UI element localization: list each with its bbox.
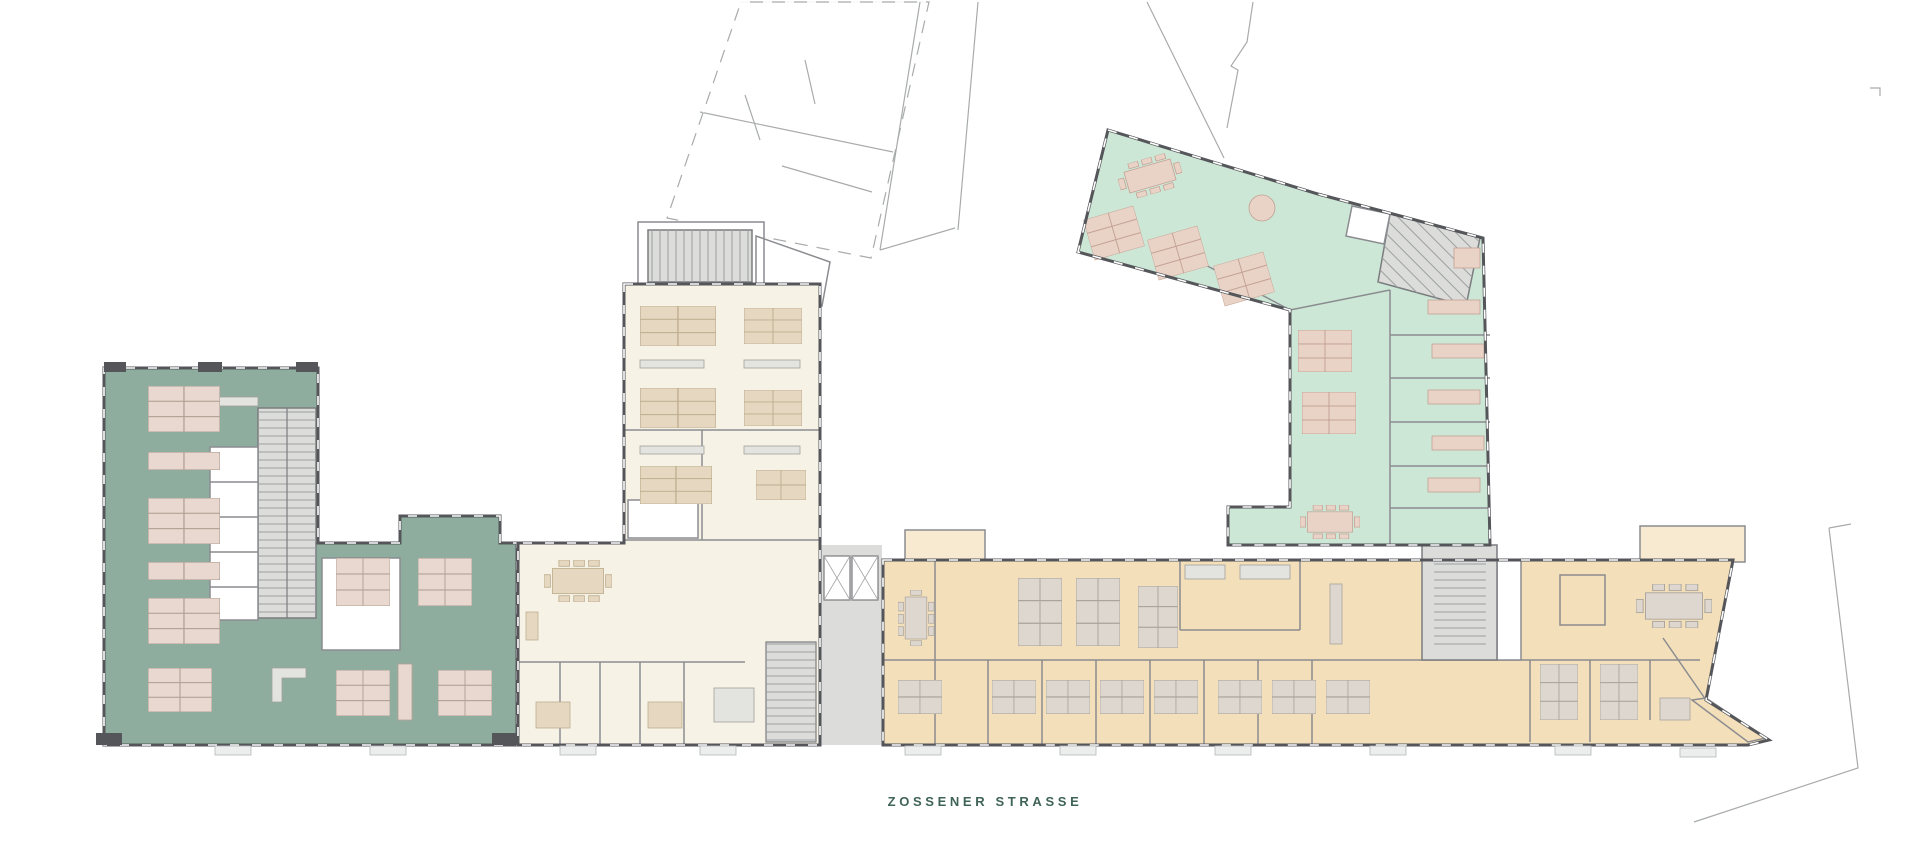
floor-plan-canvas: ZOSSENER STRASSE — [0, 0, 1920, 866]
desk-cluster — [1540, 664, 1578, 720]
lintel — [198, 362, 222, 372]
center-wc-block — [628, 500, 698, 538]
stoop — [1060, 746, 1096, 755]
desk-cluster — [336, 558, 390, 606]
desk-cluster — [992, 680, 1036, 714]
desk-cluster — [640, 388, 716, 428]
building-west-wing — [96, 362, 517, 745]
office-desk — [1454, 248, 1480, 268]
south-bay-east — [1640, 526, 1745, 562]
desk-cluster — [640, 306, 716, 346]
desk-cluster — [744, 308, 802, 344]
desk-bench — [148, 452, 220, 470]
stoop — [370, 746, 406, 755]
desk-cluster — [1018, 578, 1062, 646]
desk-cluster — [640, 466, 712, 504]
desk-cluster — [148, 498, 220, 544]
entrance-stoops — [215, 746, 1716, 757]
stoop — [560, 746, 596, 755]
desk-cluster — [418, 558, 472, 606]
center-stair-south-treads — [766, 642, 816, 742]
desk-cluster — [1302, 392, 1356, 434]
cabinet — [744, 446, 800, 454]
lintel — [492, 733, 517, 745]
building-northeast-wing — [1078, 130, 1490, 545]
office-desk — [1432, 436, 1484, 450]
desk-bench — [148, 562, 220, 580]
south-stair-treads — [1434, 560, 1486, 648]
stoop — [700, 746, 736, 755]
stoop — [905, 746, 941, 755]
lintel — [104, 362, 126, 372]
desk-cluster — [148, 386, 220, 432]
office-desk — [1660, 698, 1690, 720]
side-desk — [526, 612, 538, 640]
building-center-wing — [518, 222, 882, 745]
neighbor-outline-shape — [667, 2, 929, 258]
building-south-block — [883, 526, 1769, 745]
stoop — [1555, 746, 1591, 755]
lintel — [296, 362, 318, 372]
cabinet — [640, 360, 704, 368]
lightwell — [1497, 560, 1521, 660]
desk-cluster — [1046, 680, 1090, 714]
desk-bench — [398, 664, 412, 720]
desk-cluster — [1138, 586, 1178, 648]
desk-cluster — [336, 670, 390, 716]
floor-plan-drawing — [0, 0, 1920, 866]
desk-cluster — [1076, 578, 1120, 646]
desk-cluster — [438, 670, 492, 716]
kitchen-counter — [1185, 565, 1225, 579]
desk-cluster — [1600, 664, 1638, 720]
cabinet — [744, 360, 800, 368]
neighbor-outline-lines — [1147, 2, 1253, 158]
desk-cluster — [898, 680, 942, 714]
stoop — [215, 746, 251, 755]
center-stair-treads — [648, 230, 752, 282]
neighbor-corner-mark — [1870, 88, 1880, 96]
office-desk — [536, 702, 570, 728]
office-desk — [1432, 344, 1484, 358]
desk-cluster — [744, 390, 802, 426]
desk-cluster — [1298, 330, 1352, 372]
desk-cluster — [148, 668, 212, 712]
office-desk — [648, 702, 682, 728]
neighbor-building-outline-top-right — [1147, 2, 1880, 158]
kitchen-counter — [1240, 565, 1290, 579]
desk-cluster — [756, 470, 806, 500]
street-name-label: ZOSSENER STRASSE — [845, 794, 1125, 809]
south-bay-west — [905, 530, 985, 562]
desk-cluster — [1326, 680, 1370, 714]
desk-cluster — [1154, 680, 1198, 714]
desk-cluster — [148, 598, 220, 644]
neighbor-building-outline-top-middle — [667, 2, 929, 258]
cabinet — [640, 446, 704, 454]
office-desk — [1428, 478, 1480, 492]
stoop — [1370, 746, 1406, 755]
lounge-furniture — [714, 688, 754, 722]
desk-cluster — [1100, 680, 1144, 714]
office-desk — [1428, 300, 1480, 314]
stoop — [1680, 748, 1716, 757]
office-desk — [1428, 390, 1480, 404]
desk-cluster — [1272, 680, 1316, 714]
lintel — [96, 733, 122, 745]
desk-bench — [1330, 584, 1342, 644]
round-table — [1249, 195, 1275, 221]
desk-cluster — [1218, 680, 1262, 714]
stoop — [1215, 746, 1251, 755]
